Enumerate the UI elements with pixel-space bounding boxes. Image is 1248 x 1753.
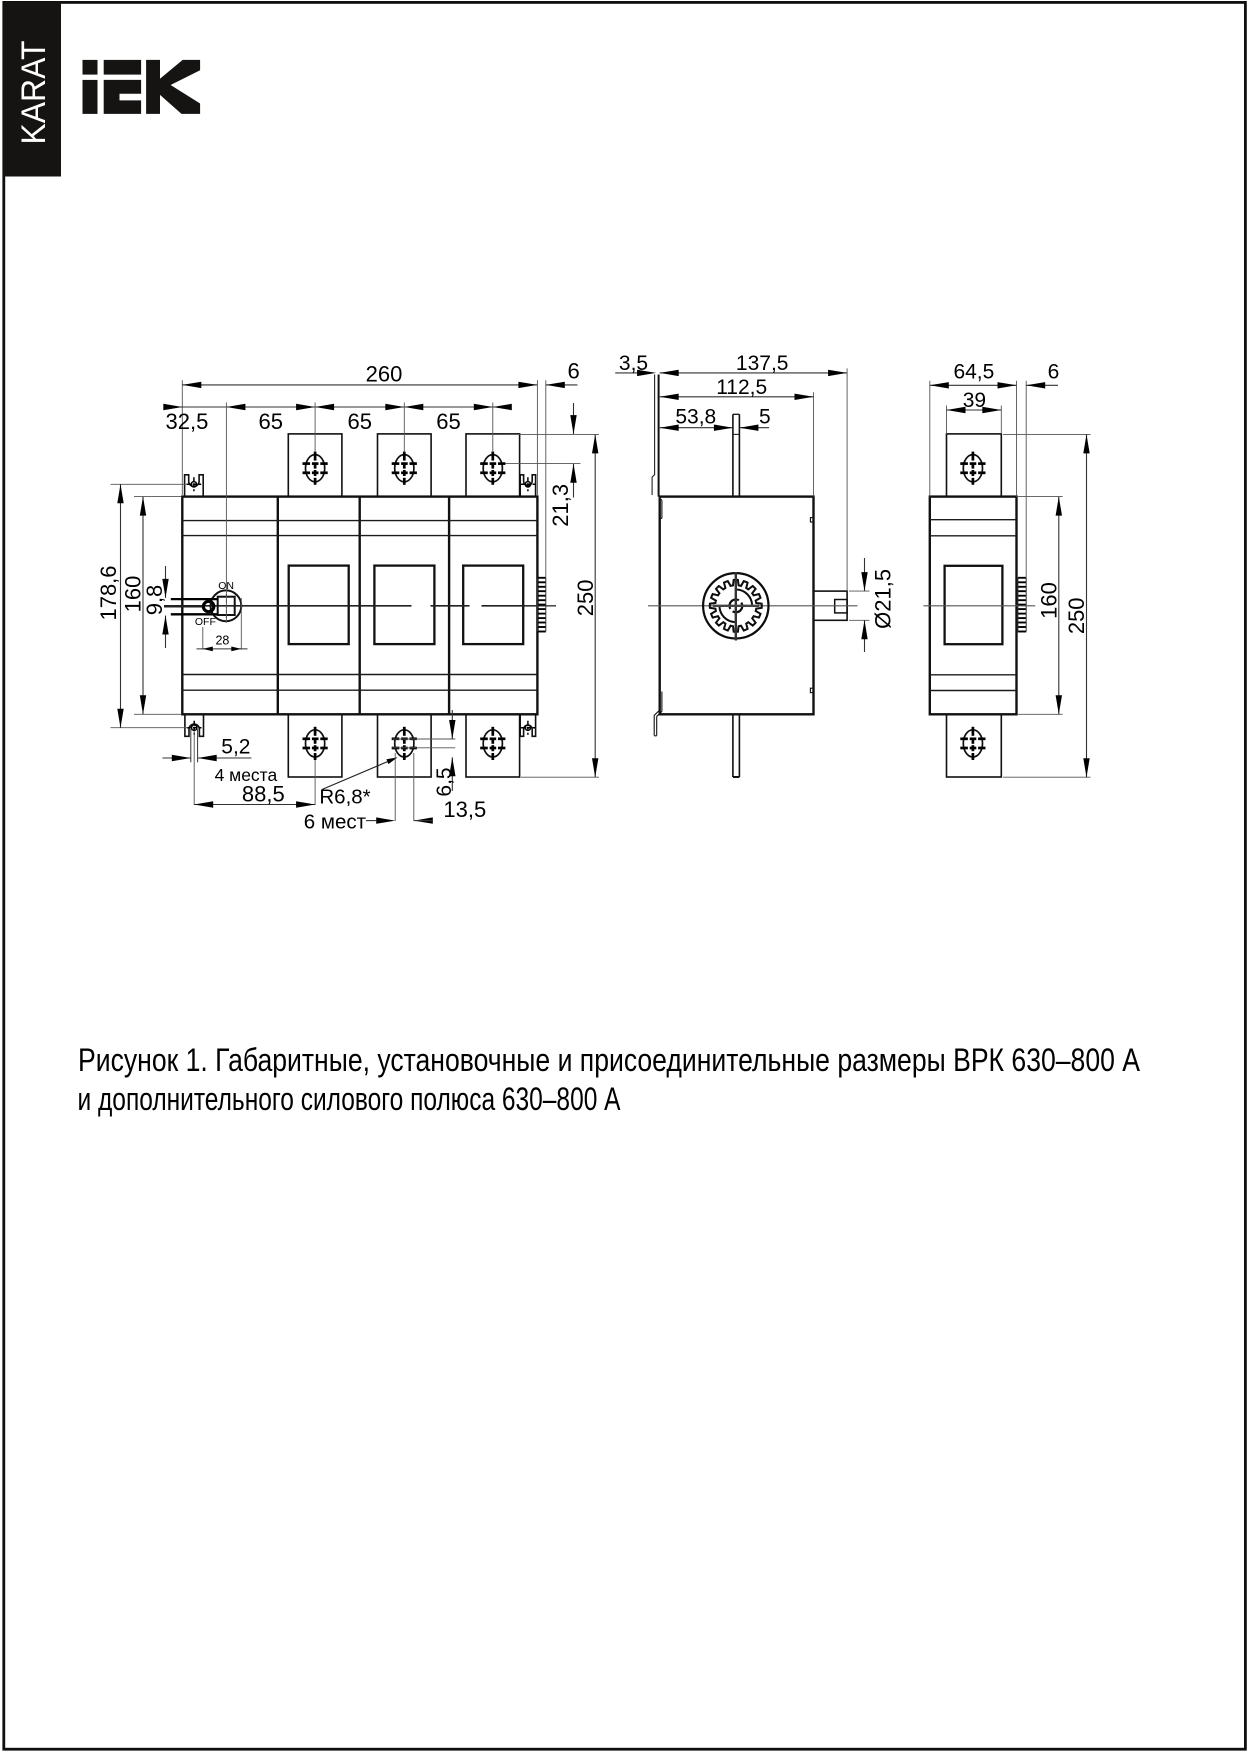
svg-text:65: 65 xyxy=(436,409,460,434)
svg-text:13,5: 13,5 xyxy=(443,797,486,822)
svg-text:260: 260 xyxy=(366,361,403,386)
svg-text:Рисунок 1. Габаритные, установ: Рисунок 1. Габаритные, установочные и пр… xyxy=(78,1042,1140,1078)
svg-text:3,5: 3,5 xyxy=(619,352,648,375)
svg-text:R6,8*: R6,8* xyxy=(319,786,370,809)
svg-text:6,5: 6,5 xyxy=(433,767,456,796)
svg-text:5: 5 xyxy=(759,406,771,429)
svg-text:9,8: 9,8 xyxy=(142,585,167,616)
svg-text:178,6: 178,6 xyxy=(96,565,121,620)
svg-text:65: 65 xyxy=(259,409,283,434)
svg-text:88,5: 88,5 xyxy=(242,781,285,806)
svg-text:OFF: OFF xyxy=(195,616,216,628)
svg-text:39: 39 xyxy=(963,389,986,412)
svg-text:6: 6 xyxy=(1048,360,1060,383)
svg-text:64,5: 64,5 xyxy=(953,360,994,383)
svg-text:5,2: 5,2 xyxy=(221,736,250,759)
svg-text:KARAT: KARAT xyxy=(15,41,53,145)
svg-text:250: 250 xyxy=(573,580,598,617)
svg-text:21,3: 21,3 xyxy=(548,484,573,527)
svg-text:32,5: 32,5 xyxy=(165,409,208,434)
svg-text:28: 28 xyxy=(215,633,229,647)
svg-text:Ø21,5: Ø21,5 xyxy=(870,569,895,629)
svg-text:250: 250 xyxy=(1064,597,1089,634)
svg-text:137,5: 137,5 xyxy=(736,352,789,375)
svg-text:112,5: 112,5 xyxy=(716,376,767,399)
svg-text:6: 6 xyxy=(567,358,579,383)
svg-text:и дополнительного силового пол: и дополнительного силового полюса 630–80… xyxy=(78,1081,621,1117)
svg-text:65: 65 xyxy=(347,409,371,434)
svg-text:53,8: 53,8 xyxy=(675,406,716,429)
svg-text:160: 160 xyxy=(1037,582,1062,619)
svg-text:6 мест: 6 мест xyxy=(304,810,367,833)
